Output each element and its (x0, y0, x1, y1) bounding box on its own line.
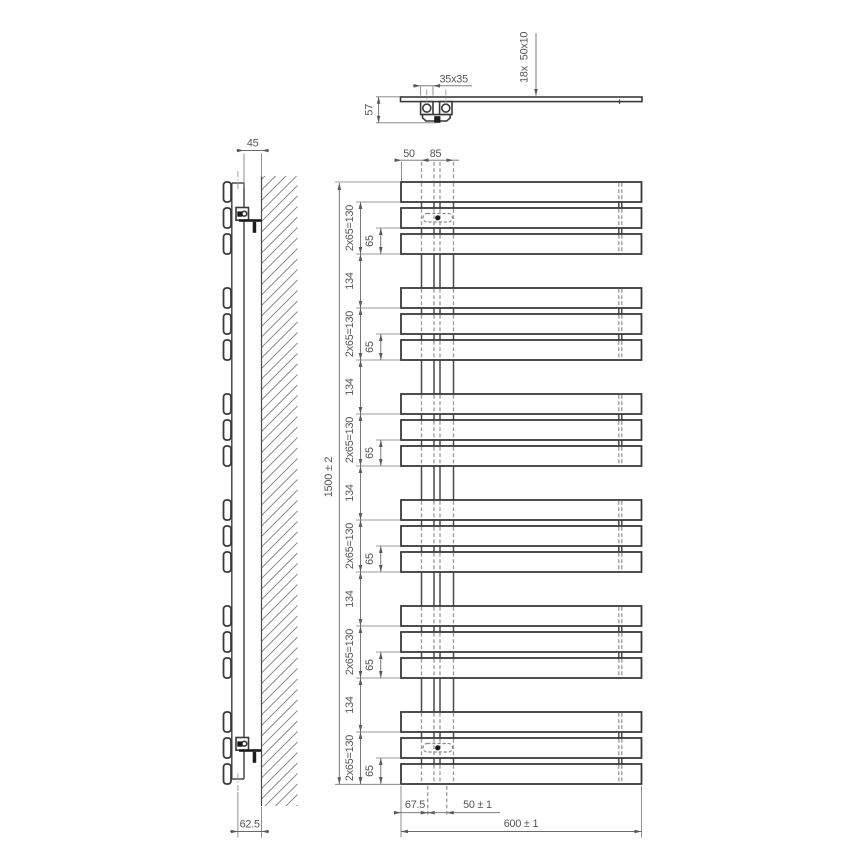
dim-arrow (379, 565, 383, 572)
hatch-line (259, 509, 300, 550)
dim-arrow (359, 671, 363, 678)
side-bracket-arm (239, 219, 262, 222)
hatch-line (259, 456, 300, 497)
dim-arrow (359, 459, 363, 466)
hatch-line (259, 194, 300, 235)
label-bar-count: 18x (519, 65, 531, 83)
hatch-line (259, 435, 300, 476)
side-bar-end-profile (224, 288, 232, 308)
hatch-line (259, 729, 300, 770)
hatch-line (259, 540, 300, 581)
dim-arrow (534, 89, 538, 96)
side-bracket-screw (242, 741, 247, 746)
dim-arrow (359, 301, 363, 308)
hatch-line (259, 593, 300, 634)
dim-arrow (262, 149, 269, 153)
dim-arrow (359, 565, 363, 572)
hatch-line (259, 278, 300, 319)
hatch-line (259, 624, 300, 665)
hatch-line (259, 393, 300, 434)
dim-arrow (231, 830, 238, 834)
dim-label-gap-134: 134 (344, 696, 356, 714)
dim-label-depth-57: 57 (363, 104, 375, 116)
dim-label-50: 50 (403, 148, 415, 160)
hatch-line (259, 519, 300, 560)
dim-arrow (359, 725, 363, 732)
hatch-line (259, 782, 300, 823)
hatch-line (259, 288, 300, 329)
hatch-line (259, 750, 300, 791)
side-bar-end-profile (224, 394, 232, 414)
dim-arrow (377, 116, 381, 123)
top-bracket-hole-left (423, 104, 431, 112)
dim-arrow (359, 513, 363, 520)
front-bar (401, 182, 642, 202)
dim-arrow (447, 158, 454, 162)
hatch-line (259, 740, 300, 781)
hatch-line (259, 362, 300, 403)
dim-label-gap-134: 134 (344, 272, 356, 290)
front-bar (401, 394, 642, 414)
side-bar-end-profile (224, 712, 232, 732)
dim-arrow (447, 811, 454, 815)
label-bar-profile: 50x10 (519, 32, 531, 61)
dim-arrow (359, 360, 363, 367)
side-bar-end-profile (224, 738, 232, 758)
dim-arrow (422, 158, 429, 162)
side-bar-end-profile (224, 632, 232, 652)
dim-label-wall-45: 45 (247, 138, 259, 150)
hatch-line (259, 246, 300, 287)
front-bar (401, 234, 642, 254)
dim-label-group-130: 2x65=130 (344, 205, 356, 251)
dim-label-85: 85 (430, 148, 442, 160)
dim-arrow (359, 777, 363, 784)
hatch-line (259, 708, 300, 749)
dim-arrow (359, 308, 363, 315)
hatch-line (259, 498, 300, 539)
dim-arrow (237, 149, 244, 153)
hatch-line (259, 488, 300, 529)
side-bar-end-profile (224, 182, 232, 202)
side-bar-end-profile (224, 658, 232, 678)
hatch-line (259, 414, 300, 455)
dim-arrow (379, 758, 383, 765)
dim-arrow (379, 247, 383, 254)
hatch-line (259, 309, 300, 350)
hatch-line (259, 257, 300, 298)
dim-arrow (359, 619, 363, 626)
hatch-line (259, 152, 300, 193)
dim-arrow (379, 228, 383, 235)
dim-arrow (359, 626, 363, 633)
dim-label-group-130: 2x65=130 (344, 417, 356, 463)
front-bar (401, 420, 642, 440)
mounting-slot-dot (435, 215, 440, 220)
hatch-line (259, 372, 300, 413)
dim-arrow (394, 811, 401, 815)
side-bar-end-profile (224, 208, 232, 228)
front-bar (401, 606, 642, 626)
hatch-line (259, 677, 300, 718)
dim-arrow (379, 459, 383, 466)
top-bracket-pad (434, 116, 440, 123)
front-bar (401, 712, 642, 732)
hatch-line (259, 267, 300, 308)
dim-arrow (359, 254, 363, 261)
dim-label-bottom-62-5: 62.5 (240, 819, 260, 831)
dim-arrow (359, 678, 363, 685)
hatch-line (259, 162, 300, 203)
dim-label-gap-134: 134 (344, 590, 356, 608)
side-bar-end-profile (224, 446, 232, 466)
hatch-line (259, 236, 300, 277)
hatch-line (259, 425, 300, 466)
hatch-line (259, 572, 300, 613)
side-bar-end-profile (224, 314, 232, 334)
dim-label-group-130: 2x65=130 (344, 523, 356, 569)
side-bracket-wall-plate (253, 752, 257, 763)
front-bar (401, 340, 642, 360)
side-bar-end-profile (224, 764, 232, 784)
front-bar (401, 526, 642, 546)
dim-label-plate-35x35: 35x35 (440, 74, 469, 86)
hatch-line (259, 183, 300, 224)
side-bar-end-profile (224, 552, 232, 572)
dim-arrow (338, 777, 342, 784)
hatch-line (259, 582, 300, 623)
dim-arrow (379, 671, 383, 678)
hatch-line (259, 645, 300, 686)
technical-drawing-canvas: 4562.550851500 ± 22x65=1302x65=1302x65=1… (0, 0, 868, 868)
hatch-line (259, 141, 300, 182)
hatch-line (259, 719, 300, 760)
dim-label-bar-65: 65 (364, 659, 376, 671)
dim-label-gap-134: 134 (344, 484, 356, 502)
front-bar (401, 500, 642, 520)
hatch-line (259, 299, 300, 340)
dim-arrow (338, 183, 342, 190)
side-bar-end-profile (224, 606, 232, 626)
dim-label-50-1: 50 ± 1 (463, 799, 492, 811)
hatch-line (259, 383, 300, 424)
side-bar-end-profile (224, 234, 232, 254)
hatch-line (259, 225, 300, 266)
hatch-line (259, 761, 300, 802)
front-bar (401, 314, 642, 334)
side-bar-end-profile (224, 526, 232, 546)
dim-arrow (359, 407, 363, 414)
side-bracket-screw (242, 211, 247, 216)
dim-arrow (359, 414, 363, 421)
dim-arrow (377, 97, 381, 104)
hatch-line (259, 341, 300, 382)
top-bracket-hole-right (442, 104, 450, 112)
dim-label-group-130: 2x65=130 (344, 311, 356, 357)
dim-arrow (635, 830, 642, 834)
hatch-line (259, 446, 300, 487)
hatch-line (259, 603, 300, 644)
dim-label-bar-65: 65 (364, 553, 376, 565)
side-bracket-pad (237, 741, 242, 746)
hatch-line (259, 404, 300, 445)
hatch-line (259, 771, 300, 812)
hatch-line (259, 792, 300, 833)
hatch-line (259, 320, 300, 361)
dim-arrow (359, 202, 363, 209)
hatch-line (259, 656, 300, 697)
hatch-line (259, 173, 300, 214)
hatch-line (259, 666, 300, 707)
wall-hatching (259, 141, 300, 844)
dim-label-67-5: 67.5 (405, 799, 425, 811)
hatch-line (259, 614, 300, 655)
front-bar (401, 552, 642, 572)
mounting-slot-dot (435, 745, 440, 750)
front-bar (401, 632, 642, 652)
dim-arrow (401, 830, 408, 834)
dim-arrow (359, 466, 363, 473)
top-bar-profile (401, 97, 643, 102)
hatch-line (259, 467, 300, 508)
dim-arrow (379, 334, 383, 341)
hatch-line (259, 698, 300, 739)
dim-arrow (359, 520, 363, 527)
dim-arrow (359, 247, 363, 254)
front-bar (401, 764, 642, 784)
side-bracket-wall-plate (253, 222, 257, 233)
hatch-line (259, 551, 300, 592)
dim-arrow (379, 652, 383, 659)
dim-label-width-600: 600 ± 1 (504, 818, 539, 830)
dim-label-height-1500: 1500 ± 2 (323, 457, 335, 498)
hatch-line (259, 687, 300, 728)
side-bar-end-profile (224, 420, 232, 440)
dim-arrow (414, 84, 421, 88)
dim-arrow (359, 572, 363, 579)
dim-label-group-130: 2x65=130 (344, 629, 356, 675)
dim-label-gap-134: 134 (344, 378, 356, 396)
hatch-line (259, 330, 300, 371)
dim-label-bar-65: 65 (364, 765, 376, 777)
dim-arrow (395, 158, 402, 162)
dim-arrow (359, 732, 363, 739)
side-bar-end-profile (224, 500, 232, 520)
dim-arrow (379, 353, 383, 360)
hatch-line (259, 477, 300, 518)
side-bracket-pad (237, 211, 242, 216)
front-bar (401, 288, 642, 308)
hatch-line (259, 635, 300, 676)
hatch-line (259, 204, 300, 245)
side-bracket-arm (239, 749, 262, 752)
front-bar (401, 658, 642, 678)
dim-arrow (262, 830, 269, 834)
technical-drawing-page: 4562.550851500 ± 22x65=1302x65=1302x65=1… (0, 0, 868, 868)
dim-arrow (379, 777, 383, 784)
dim-label-bar-65: 65 (364, 447, 376, 459)
dim-arrow (421, 811, 428, 815)
dim-label-group-130: 2x65=130 (344, 735, 356, 781)
dim-label-bar-65: 65 (364, 235, 376, 247)
hatch-line (259, 351, 300, 392)
hatch-line (259, 215, 300, 256)
front-bar (401, 446, 642, 466)
dim-arrow (379, 440, 383, 447)
dim-label-bar-65: 65 (364, 341, 376, 353)
side-bar-end-profile (224, 340, 232, 360)
dim-arrow (379, 546, 383, 553)
hatch-line (259, 561, 300, 602)
hatch-line (259, 530, 300, 571)
hatch-line (259, 803, 300, 844)
dim-arrow (359, 353, 363, 360)
